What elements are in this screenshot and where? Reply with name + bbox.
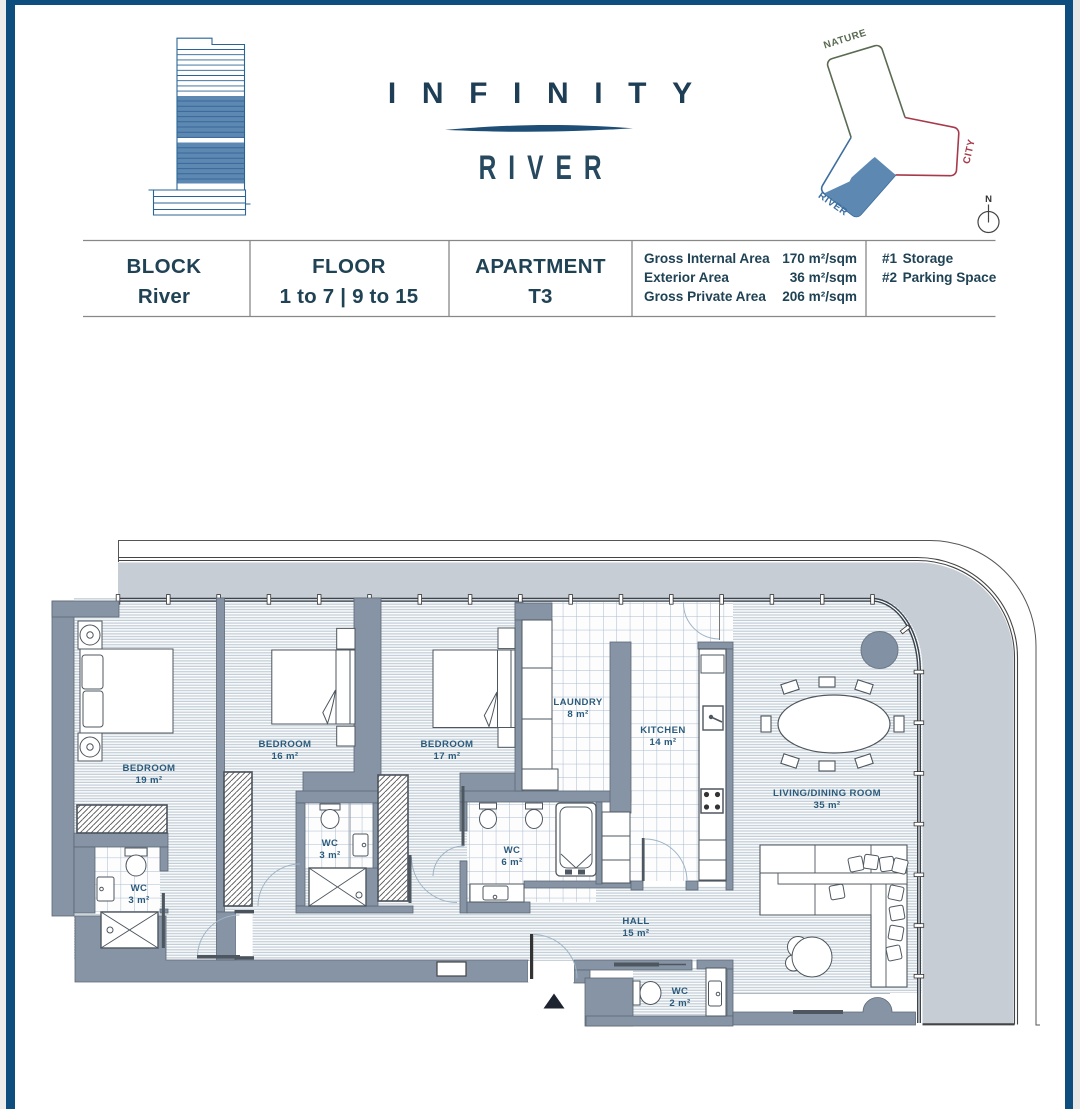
- svg-text:206 m²/sqm: 206 m²/sqm: [782, 289, 857, 304]
- svg-text:WC: WC: [131, 883, 148, 894]
- svg-text:FLOOR: FLOOR: [312, 255, 386, 278]
- svg-text:3 m²: 3 m²: [319, 850, 340, 861]
- svg-text:170 m²/sqm: 170 m²/sqm: [782, 251, 857, 266]
- svg-text:River: River: [138, 285, 190, 308]
- svg-text:WC: WC: [504, 845, 521, 856]
- svg-text:BEDROOM: BEDROOM: [421, 739, 474, 750]
- svg-text:36 m²/sqm: 36 m²/sqm: [790, 270, 857, 285]
- svg-text:HALL: HALL: [622, 916, 649, 927]
- svg-text:17 m²: 17 m²: [433, 751, 460, 762]
- svg-text:8 m²: 8 m²: [567, 709, 588, 720]
- svg-text:WC: WC: [322, 838, 339, 849]
- svg-text:Gross Private Area: Gross Private Area: [644, 289, 766, 304]
- svg-text:14 m²: 14 m²: [649, 737, 676, 748]
- svg-text:#2 Parking Space: #2 Parking Space: [882, 270, 997, 285]
- svg-text:3 m²: 3 m²: [128, 895, 149, 906]
- svg-text:Exterior Area: Exterior Area: [644, 270, 729, 285]
- svg-text:T3: T3: [528, 285, 552, 308]
- svg-text:Gross Internal Area: Gross Internal Area: [644, 251, 770, 266]
- svg-text:19 m²: 19 m²: [135, 775, 162, 786]
- svg-text:KITCHEN: KITCHEN: [640, 725, 685, 736]
- svg-text:WC: WC: [672, 986, 689, 997]
- svg-text:6 m²: 6 m²: [501, 857, 522, 868]
- svg-text:APARTMENT: APARTMENT: [475, 255, 606, 278]
- svg-text:15 m²: 15 m²: [622, 928, 649, 939]
- svg-text:#1 Storage: #1 Storage: [882, 251, 954, 266]
- svg-text:2 m²: 2 m²: [669, 998, 690, 1009]
- svg-text:LIVING/DINING ROOM: LIVING/DINING ROOM: [773, 788, 881, 799]
- svg-text:BEDROOM: BEDROOM: [259, 739, 312, 750]
- svg-text:BLOCK: BLOCK: [127, 255, 202, 278]
- svg-text:BEDROOM: BEDROOM: [123, 763, 176, 774]
- svg-text:1 to 7 | 9 to 15: 1 to 7 | 9 to 15: [280, 285, 419, 308]
- svg-text:35 m²: 35 m²: [813, 800, 840, 811]
- svg-text:16 m²: 16 m²: [271, 751, 298, 762]
- svg-text:LAUNDRY: LAUNDRY: [553, 697, 603, 708]
